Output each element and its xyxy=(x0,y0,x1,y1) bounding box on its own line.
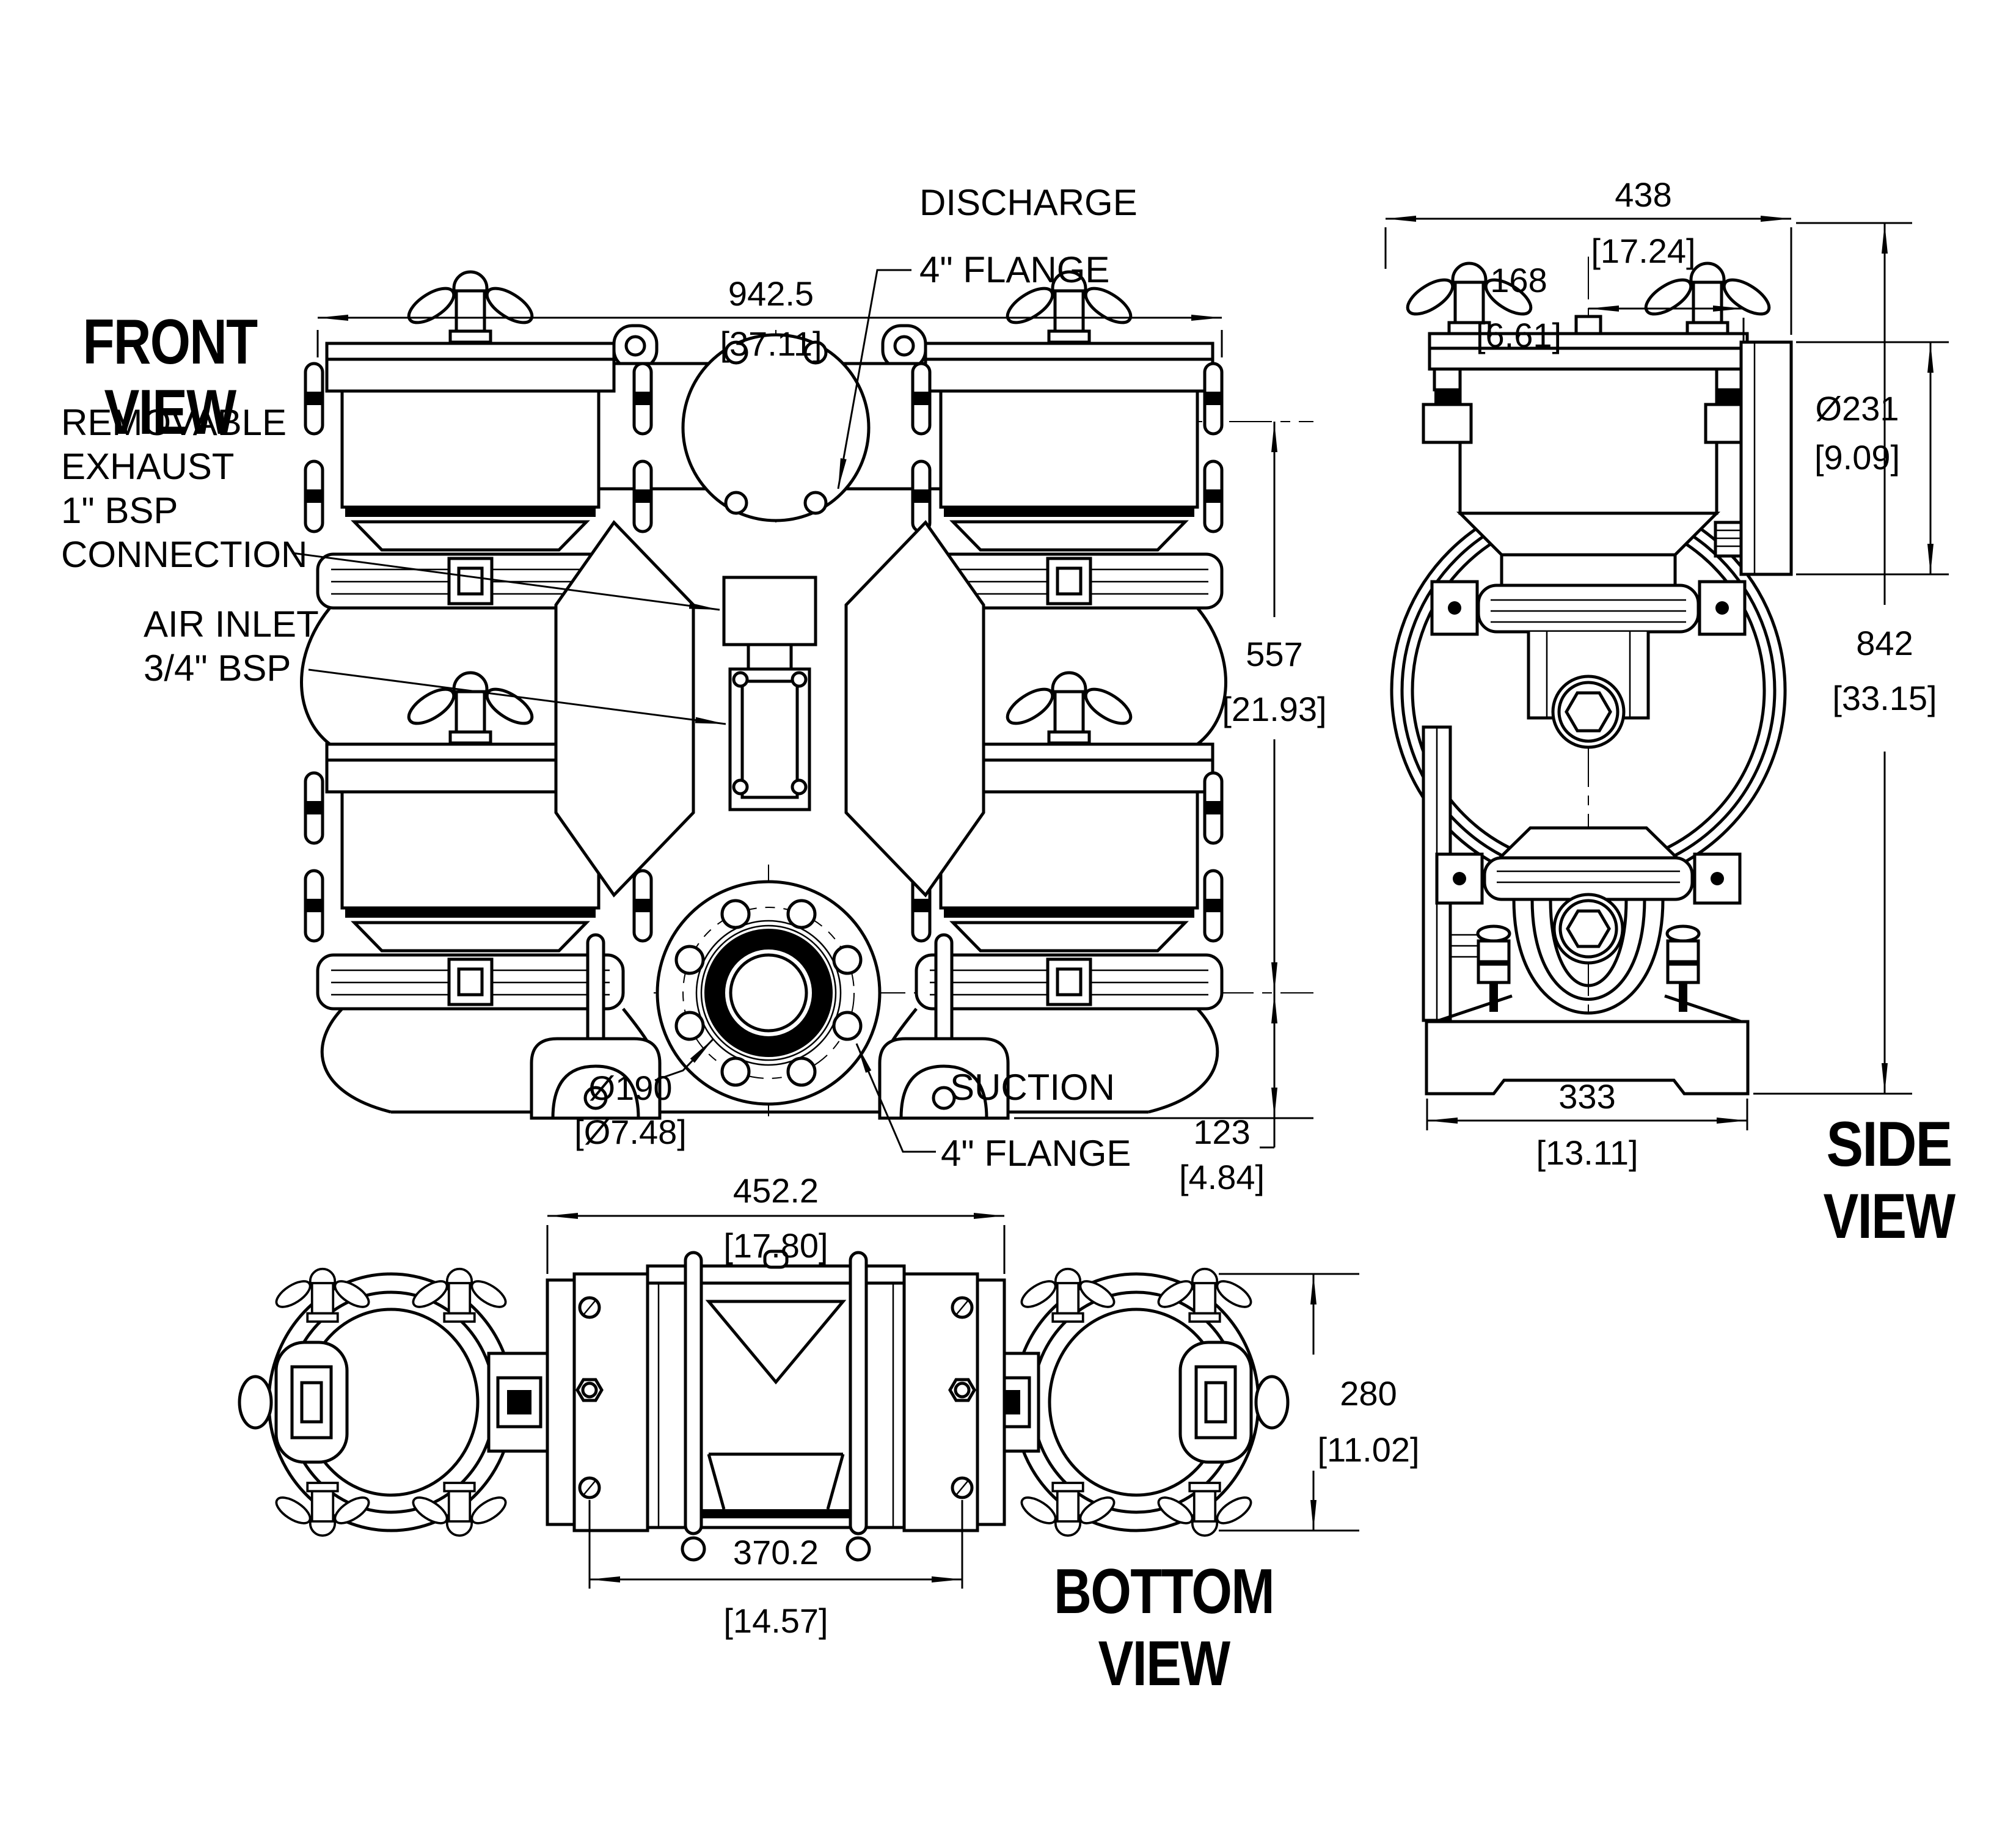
callout-air-2: 3/4" BSP xyxy=(144,648,291,689)
dim-foot-hole-span-mm: 370.2 xyxy=(733,1533,819,1571)
callout-exhaust-3: 1" BSP xyxy=(61,490,178,531)
dim-flange-face-offset-in: [6.61] xyxy=(1476,316,1561,354)
bottom-clamp-left xyxy=(239,1269,513,1536)
callout-suction-1: SUCTION xyxy=(950,1067,1115,1108)
dim-discharge-height-in: [21.93] xyxy=(1222,690,1326,728)
callout-discharge-1: DISCHARGE xyxy=(919,182,1138,223)
dim-base-depth-mm: 333 xyxy=(1558,1077,1615,1116)
wing-nut xyxy=(403,272,537,342)
dim-foot-hole-span-in: [14.57] xyxy=(723,1601,828,1640)
dim-clamp-width-in: [11.02] xyxy=(1317,1430,1419,1469)
dim-depth-mm: 438 xyxy=(1615,175,1671,214)
front-view-title-1: FRONT xyxy=(83,307,258,378)
drawing-canvas: 942.5 [37.11] DISCHARGE 4" FLANGE REMOVA… xyxy=(0,0,2016,1833)
dim-overall-width-in: [37.11] xyxy=(720,324,822,363)
dim-base-depth-in: [13.11] xyxy=(1536,1133,1638,1172)
front-view-title-2: VIEW xyxy=(104,377,237,448)
side-view-title-2: VIEW xyxy=(1824,1181,1956,1252)
side-lower-clamp xyxy=(1437,828,1740,903)
bottom-view-title-2: VIEW xyxy=(1098,1628,1231,1699)
side-view-title-1: SIDE xyxy=(1827,1109,1952,1180)
side-air-chamber xyxy=(1430,316,1747,585)
front-view xyxy=(302,272,1314,1118)
callout-discharge-2: 4" FLANGE xyxy=(919,249,1109,290)
callout-suction-2: 4" FLANGE xyxy=(941,1133,1131,1174)
bottom-view-title-1: BOTTOM xyxy=(1054,1556,1274,1627)
chamber-stack-top-left xyxy=(318,343,623,608)
side-upper-clamp xyxy=(1432,582,1745,634)
dim-depth-in: [17.24] xyxy=(1591,232,1695,270)
dim-overall-height-in: [33.15] xyxy=(1832,679,1937,717)
dim-foot-plate-span-mm: 452.2 xyxy=(733,1171,819,1210)
dim-discharge-height-mm: 557 xyxy=(1246,635,1302,673)
bottom-clamp-right xyxy=(1014,1269,1288,1536)
wing-nut xyxy=(1002,673,1136,743)
dim-suction-drop-mm: 123 xyxy=(1193,1113,1250,1151)
dim-suction-drop-in: [4.84] xyxy=(1179,1158,1265,1196)
bottom-view xyxy=(239,1251,1288,1560)
dim-foot-plate-span-in: [17.80] xyxy=(723,1226,828,1265)
dim-suction-bore-mm: Ø190 xyxy=(589,1069,673,1107)
dim-clamp-width-mm: 280 xyxy=(1340,1374,1397,1413)
callout-exhaust-4: CONNECTION xyxy=(61,534,307,575)
dim-overall-height-mm: 842 xyxy=(1856,624,1913,662)
side-view xyxy=(1392,257,1791,1094)
air-valve-block xyxy=(730,669,809,810)
side-upper-tube xyxy=(1528,632,1648,747)
pump-dimensional-drawing: 942.5 [37.11] DISCHARGE 4" FLANGE REMOVA… xyxy=(0,0,2016,1833)
chamber-stack-top-right xyxy=(916,343,1222,608)
dim-flange-od-mm: Ø231 xyxy=(1816,389,1899,428)
callout-air-1: AIR INLET xyxy=(144,604,319,645)
dim-flange-od-in: [9.09] xyxy=(1814,438,1900,477)
dim-overall-width-mm: 942.5 xyxy=(728,274,814,313)
callout-exhaust-2: EXHAUST xyxy=(61,446,234,487)
dim-suction-bore-in: [Ø7.48] xyxy=(574,1113,687,1151)
wing-nut xyxy=(1640,263,1774,334)
dim-flange-face-offset-mm: 168 xyxy=(1490,261,1547,299)
suction-flange xyxy=(657,882,880,1104)
wing-nut xyxy=(403,673,537,743)
exhaust-port xyxy=(724,577,816,669)
